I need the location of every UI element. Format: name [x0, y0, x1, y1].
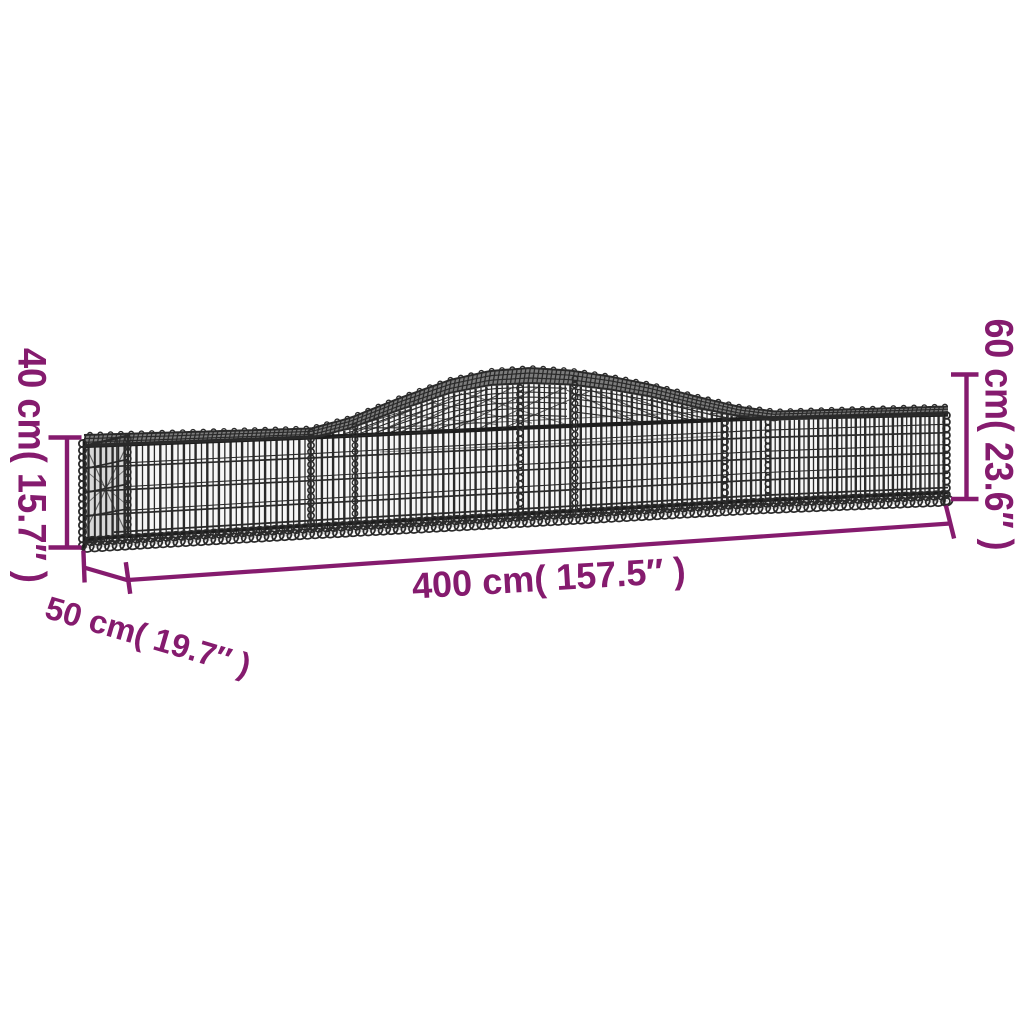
svg-text:50 cm( 19.7″ ): 50 cm( 19.7″ ) — [41, 590, 255, 684]
svg-text:40 cm( 15.7″ ): 40 cm( 15.7″ ) — [10, 348, 54, 583]
svg-text:60 cm( 23.6″ ): 60 cm( 23.6″ ) — [977, 319, 1021, 551]
